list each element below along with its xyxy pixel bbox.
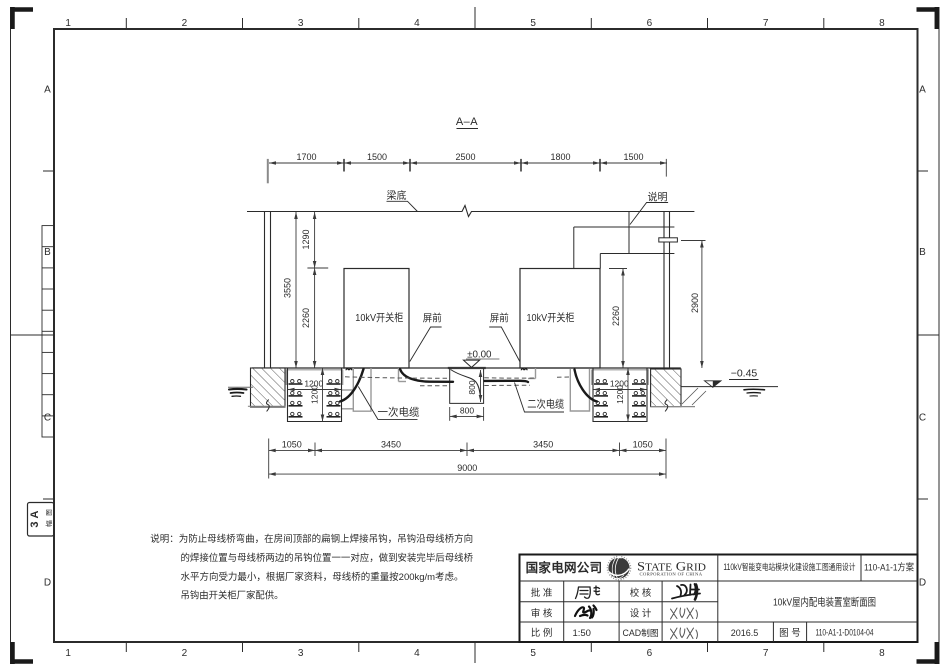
svg-text:3550: 3550 [283, 278, 293, 298]
svg-text:B: B [44, 247, 51, 258]
svg-text:CAD制图: CAD制图 [623, 627, 659, 638]
svg-text:1800: 1800 [550, 152, 570, 162]
svg-text:A: A [29, 510, 41, 518]
svg-text:的焊接位置与母线桥两边的吊钩位置一一对应，做到安装完毕后母线: 的焊接位置与母线桥两边的吊钩位置一一对应，做到安装完毕后母线桥 [181, 552, 474, 564]
svg-text:7: 7 [763, 18, 769, 29]
svg-text:审 核: 审 核 [531, 607, 553, 619]
svg-text:3: 3 [29, 521, 41, 527]
svg-text:水平方向受力最小，根据厂家资料，母线桥的重量按200kg/m: 水平方向受力最小，根据厂家资料，母线桥的重量按200kg/m考虑。 [181, 571, 464, 583]
svg-text:4: 4 [414, 648, 420, 659]
svg-text:1050: 1050 [633, 440, 653, 450]
svg-text:说明：为防止母线桥弯曲，在房间顶部的扁钢上焊接吊钩，吊钩沿母: 说明：为防止母线桥弯曲，在房间顶部的扁钢上焊接吊钩，吊钩沿母线桥方向 [150, 533, 473, 545]
svg-text:1290: 1290 [301, 229, 311, 249]
svg-text:2260: 2260 [301, 308, 311, 328]
svg-text:2: 2 [182, 18, 188, 29]
svg-text:CORPORATION OF CHINA: CORPORATION OF CHINA [640, 572, 703, 577]
svg-text:C: C [919, 413, 926, 424]
svg-text:B: B [919, 247, 926, 258]
svg-text:1200: 1200 [309, 385, 319, 404]
svg-text:1: 1 [65, 648, 71, 659]
svg-text:1050: 1050 [282, 440, 302, 450]
svg-text:D: D [44, 578, 51, 589]
svg-text:A–A: A–A [456, 116, 478, 128]
svg-text:5: 5 [530, 648, 536, 659]
svg-text:屏前: 屏前 [490, 312, 509, 325]
svg-text:梁底: 梁底 [387, 189, 407, 202]
svg-text:批 准: 批 准 [531, 587, 553, 599]
svg-text:幅: 幅 [44, 520, 53, 527]
svg-text:−0.45: −0.45 [731, 368, 758, 380]
svg-text:10kV屋内配电装置室断面图: 10kV屋内配电装置室断面图 [773, 595, 876, 608]
svg-text:4: 4 [414, 18, 420, 29]
svg-text:3450: 3450 [533, 440, 553, 450]
svg-text:图 号: 图 号 [779, 628, 801, 639]
svg-text:110kV智能变电站模块化建设施工图通用设计: 110kV智能变电站模块化建设施工图通用设计 [723, 561, 855, 572]
svg-text:2260: 2260 [611, 306, 621, 326]
svg-text:图: 图 [45, 509, 53, 516]
svg-text:屏前: 屏前 [423, 312, 442, 325]
svg-text:国家电网公司: 国家电网公司 [526, 560, 603, 575]
svg-text:8: 8 [879, 18, 885, 29]
svg-text:800: 800 [460, 406, 474, 416]
svg-text:6: 6 [647, 18, 653, 29]
svg-text:C: C [44, 413, 51, 424]
svg-text:一次电缆: 一次电缆 [378, 406, 420, 419]
svg-text:设 计: 设 计 [630, 607, 652, 619]
svg-text:3: 3 [298, 648, 304, 659]
svg-text:比 例: 比 例 [531, 627, 553, 639]
svg-text:校 核: 校 核 [630, 587, 652, 599]
svg-text:1500: 1500 [623, 152, 643, 162]
svg-text:110-A1-1方案: 110-A1-1方案 [864, 562, 914, 574]
svg-text:1500: 1500 [367, 152, 387, 162]
svg-text:5: 5 [530, 18, 536, 29]
svg-text:7: 7 [763, 648, 769, 659]
svg-text:110-A1-1-D0104-04: 110-A1-1-D0104-04 [816, 627, 874, 637]
svg-text:说明: 说明 [648, 191, 668, 204]
svg-text:1: 1 [65, 18, 71, 29]
svg-text:A: A [919, 85, 926, 96]
svg-text:3: 3 [298, 18, 304, 29]
svg-text:800: 800 [467, 380, 477, 394]
svg-text:1700: 1700 [296, 152, 316, 162]
svg-text:二次电缆: 二次电缆 [527, 398, 564, 411]
svg-text:8: 8 [879, 648, 885, 659]
svg-text:2: 2 [182, 648, 188, 659]
svg-text:2016.5: 2016.5 [731, 628, 759, 638]
svg-text:1:50: 1:50 [572, 628, 591, 639]
svg-text:D: D [919, 578, 926, 589]
svg-text:吊钩由开关柜厂家配供。: 吊钩由开关柜厂家配供。 [181, 590, 284, 602]
svg-text:3450: 3450 [381, 440, 401, 450]
svg-text:10kV开关柜: 10kV开关柜 [355, 311, 403, 324]
svg-text:10kV开关柜: 10kV开关柜 [527, 311, 575, 324]
svg-text:A: A [44, 85, 51, 96]
svg-text:1200: 1200 [615, 385, 625, 404]
svg-text:2500: 2500 [455, 152, 475, 162]
svg-text:2900: 2900 [690, 293, 700, 313]
svg-text:6: 6 [647, 648, 653, 659]
svg-text:9000: 9000 [457, 463, 477, 473]
